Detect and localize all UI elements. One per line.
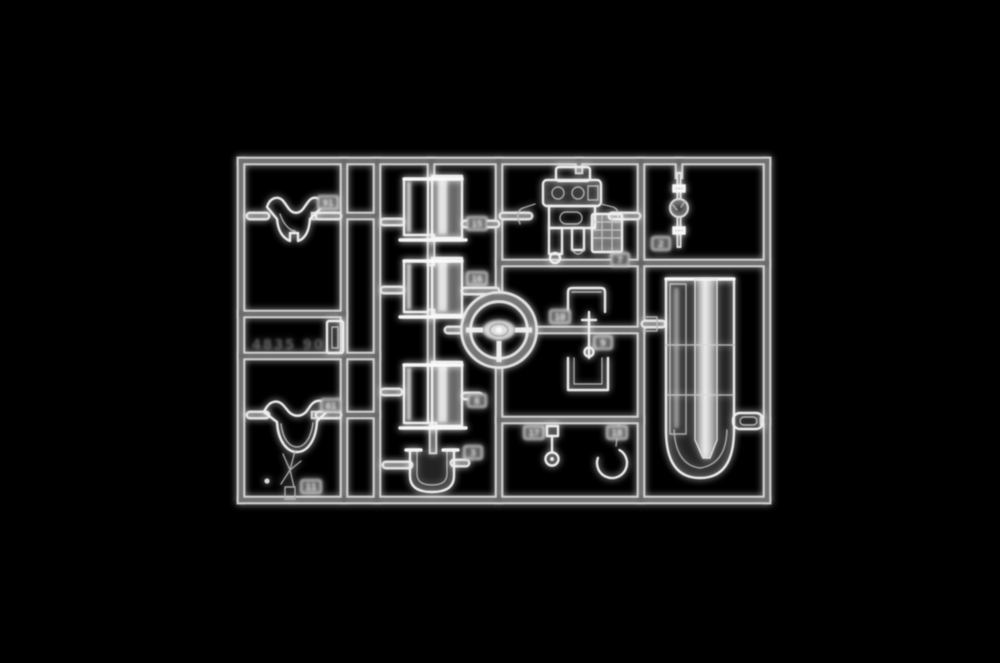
tag-instrument-panel: 7 [611,253,629,266]
tag-windscreen-upper: 91 [318,196,338,209]
part-duct-1 [400,176,466,240]
tag-knob: 17 [524,426,544,439]
tag-label: 8 [474,397,479,407]
tag-label: 18 [612,429,623,439]
sprue-photo: 4835 90 [0,0,1000,663]
tag-plate: 10 [550,310,570,323]
tag-label: 9 [600,339,605,349]
tag-star-fitting: 11 [301,480,321,493]
tag-label: 16 [472,275,483,285]
tag-duct-1: 15 [467,217,487,230]
tag-label: 2 [658,240,663,250]
tag-label: 3 [470,449,475,459]
mold-marking: 4835 90 [252,338,325,353]
tag-label: 11 [306,483,317,493]
tag-duct-3: 8 [468,394,486,407]
tag-label: 7 [617,256,622,266]
tag-label: 15 [472,220,483,230]
tag-label: 10 [555,313,566,323]
photo-canvas: 4835 90 [0,0,1000,663]
part-u-windscreen [406,450,458,492]
tag-ring: 18 [607,426,627,439]
part-duct-2 [400,258,466,317]
tag-duct-2: 16 [467,272,487,285]
part-duct-3 [400,362,466,428]
tag-label: 61 [326,402,337,412]
flash-dot [264,478,269,483]
tag-windscreen-lower: 61 [321,399,341,412]
tag-label: 91 [323,199,334,209]
tag-lever: 9 [594,336,612,349]
tag-label: 17 [529,429,540,439]
tag-sight: 2 [652,237,670,250]
tag-u-windscreen: 3 [464,446,482,459]
